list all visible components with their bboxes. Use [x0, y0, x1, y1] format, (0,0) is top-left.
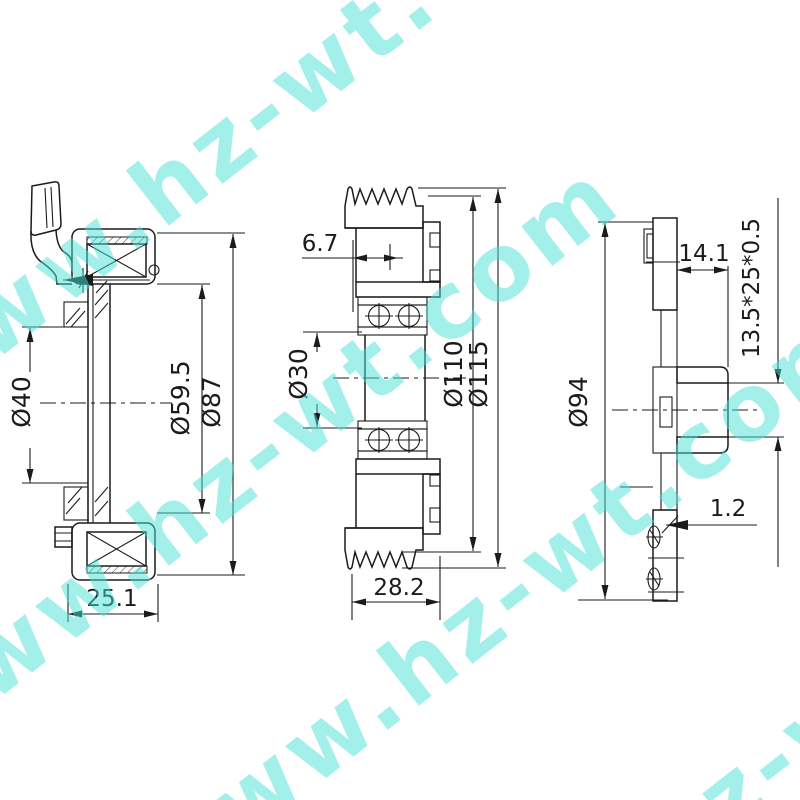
drawing-canvas: Ø40 Ø59.5 Ø87 25.1: [0, 0, 800, 800]
dim-label-hub-depth: 14.1: [678, 241, 729, 267]
dim-label-outer-right: Ø94: [564, 376, 593, 428]
dim-label-width-middle: 28.2: [373, 575, 424, 601]
dim-label-offset: 6.7: [302, 231, 339, 257]
technical-drawing-page: Ø40 Ø59.5 Ø87 25.1: [0, 0, 800, 800]
dim-label-bore-left: Ø40: [7, 376, 36, 428]
dim-label-coil-left: Ø59.5: [166, 360, 195, 435]
